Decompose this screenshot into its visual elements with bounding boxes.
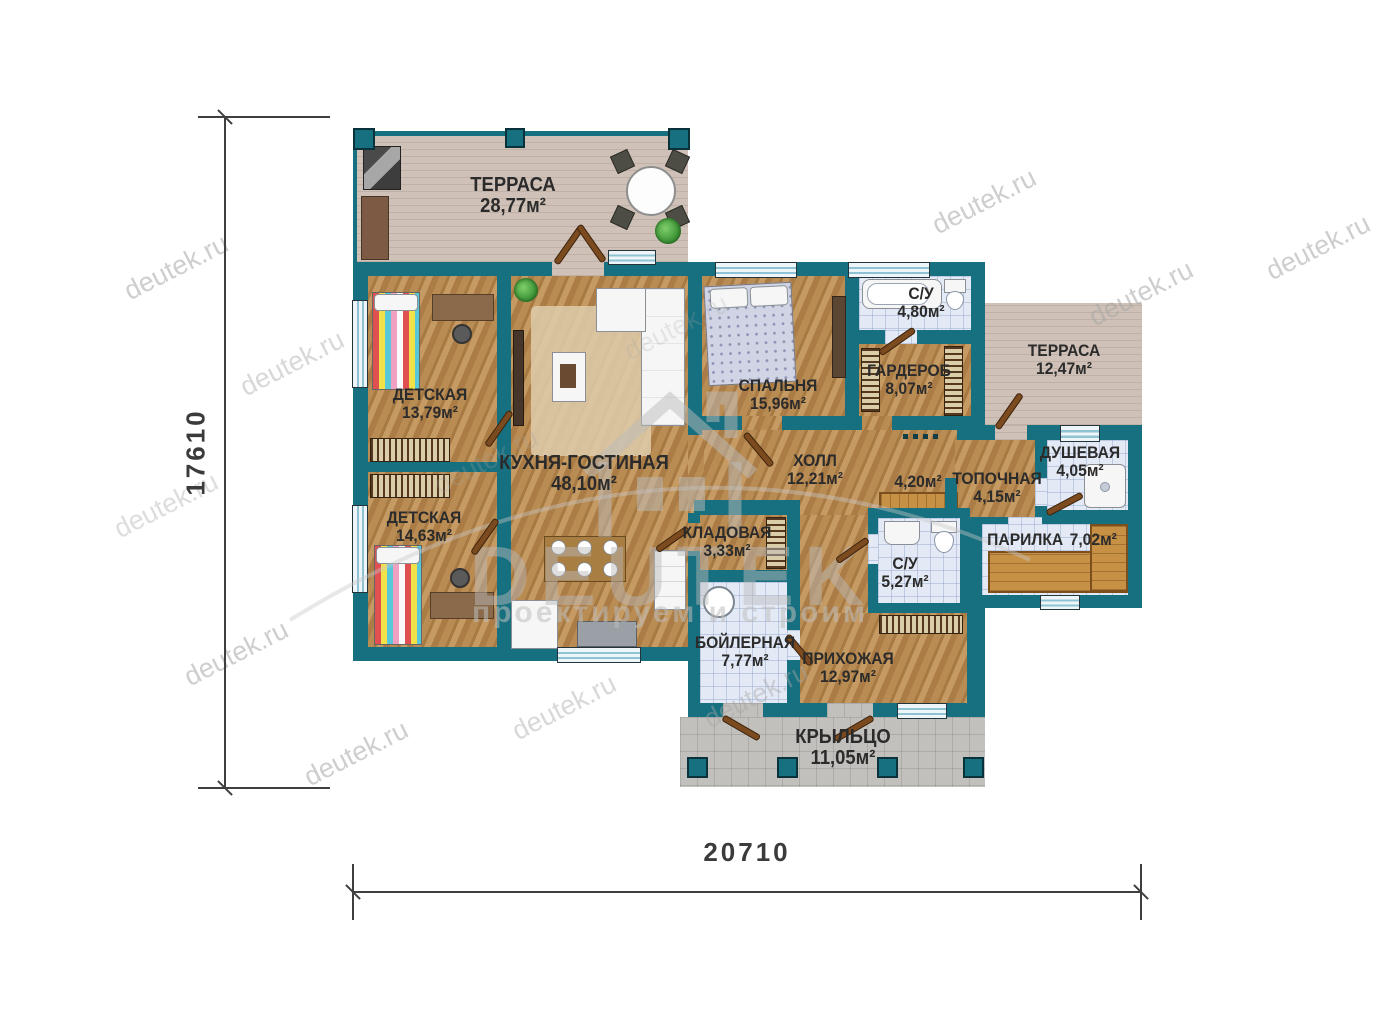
room-label-hall: ХОЛЛ12,21м²: [787, 452, 843, 488]
terrace-post-1: [353, 128, 375, 150]
detskaya1-chair: [452, 324, 472, 344]
watermark-site-1: deutek.ru: [119, 228, 233, 307]
room-label-dushevaya: ДУШЕВАЯ4,05м²: [1040, 444, 1120, 480]
floor-plan: deutek.ru deutek.ru deutek.ru deutek.ru …: [0, 0, 1400, 1015]
garderob-vent-dots: [903, 434, 938, 439]
detskaya1-desk: [432, 294, 494, 321]
room-label-su2: С/У5,27м²: [881, 555, 928, 591]
terrace-plant: [655, 218, 681, 244]
watermark-site-10: deutek.ru: [1261, 208, 1375, 287]
door-gap-terrace-kitchen: [552, 262, 604, 276]
dim-vertical-top-bar: [198, 116, 330, 118]
room-label-420: 4,20м²: [894, 473, 941, 491]
terrace-post-3: [668, 128, 690, 150]
detskaya1-pillow: [374, 294, 418, 311]
window-kitchen-top: [608, 250, 656, 265]
logo-tagline: проектируем и строим: [390, 596, 950, 630]
window-prihozhaya-bottom: [897, 703, 947, 719]
room-label-boilernaya: БОЙЛЕРНАЯ7,77м²: [695, 634, 795, 670]
grill: [363, 146, 401, 190]
dim-horizontal-line: [352, 891, 1142, 893]
shower-drain: [1100, 482, 1110, 492]
dim-width-label: 20710: [703, 837, 790, 868]
room-label-prihozhaya: ПРИХОЖАЯ12,97м²: [802, 650, 894, 686]
sofa-arm: [596, 288, 646, 332]
porch-post-1: [687, 757, 708, 778]
terrace-post-2: [505, 128, 525, 148]
room-label-detskaya1: ДЕТСКАЯ13,79м²: [393, 386, 468, 422]
porch-post-4: [963, 757, 984, 778]
room-label-kitchen: КУХНЯ-ГОСТИНАЯ48,10м²: [499, 453, 669, 495]
room-label-terrace-right: ТЕРРАСА12,47м²: [1028, 342, 1101, 378]
window-su1-top: [848, 262, 930, 278]
kitchen-plant: [514, 278, 538, 302]
room-label-su1: С/У4,80м²: [897, 285, 944, 321]
window-bedroom-top: [715, 262, 797, 278]
watermark-site-5: deutek.ru: [299, 714, 413, 793]
terrace-table: [626, 166, 676, 216]
room-label-kladovaya: КЛАДОВАЯ3,33м²: [683, 524, 772, 560]
room-label-terrace-top: ТЕРРАСА28,77м²: [470, 175, 555, 217]
terrace-bench: [361, 196, 389, 260]
dim-height-label: 17610: [181, 408, 212, 495]
room-label-detskaya2: ДЕТСКАЯ14,63м²: [387, 509, 462, 545]
room-label-parilka: ПАРИЛКА7,02м²: [987, 531, 1117, 549]
door-gap-porch-entry: [827, 703, 873, 717]
watermark-site-8: deutek.ru: [927, 162, 1041, 241]
window-parilka-bottom: [1040, 595, 1080, 610]
room-label-bedroom: СПАЛЬНЯ15,96м²: [739, 377, 818, 413]
watermark-site-4: deutek.ru: [179, 614, 293, 693]
dim-vertical-line: [224, 117, 226, 788]
window-dushevaya-top: [1060, 425, 1100, 442]
bedroom-pillow-2: [750, 285, 789, 307]
dim-vertical-bottom-bar: [198, 787, 330, 789]
room-label-kryltso: КРЫЛЬЦО11,05м²: [795, 727, 890, 769]
room-label-topochnaya: ТОПОЧНАЯ4,15м²: [952, 470, 1042, 506]
room-label-garderob: ГАРДЕРОБ8,07м²: [867, 362, 951, 398]
